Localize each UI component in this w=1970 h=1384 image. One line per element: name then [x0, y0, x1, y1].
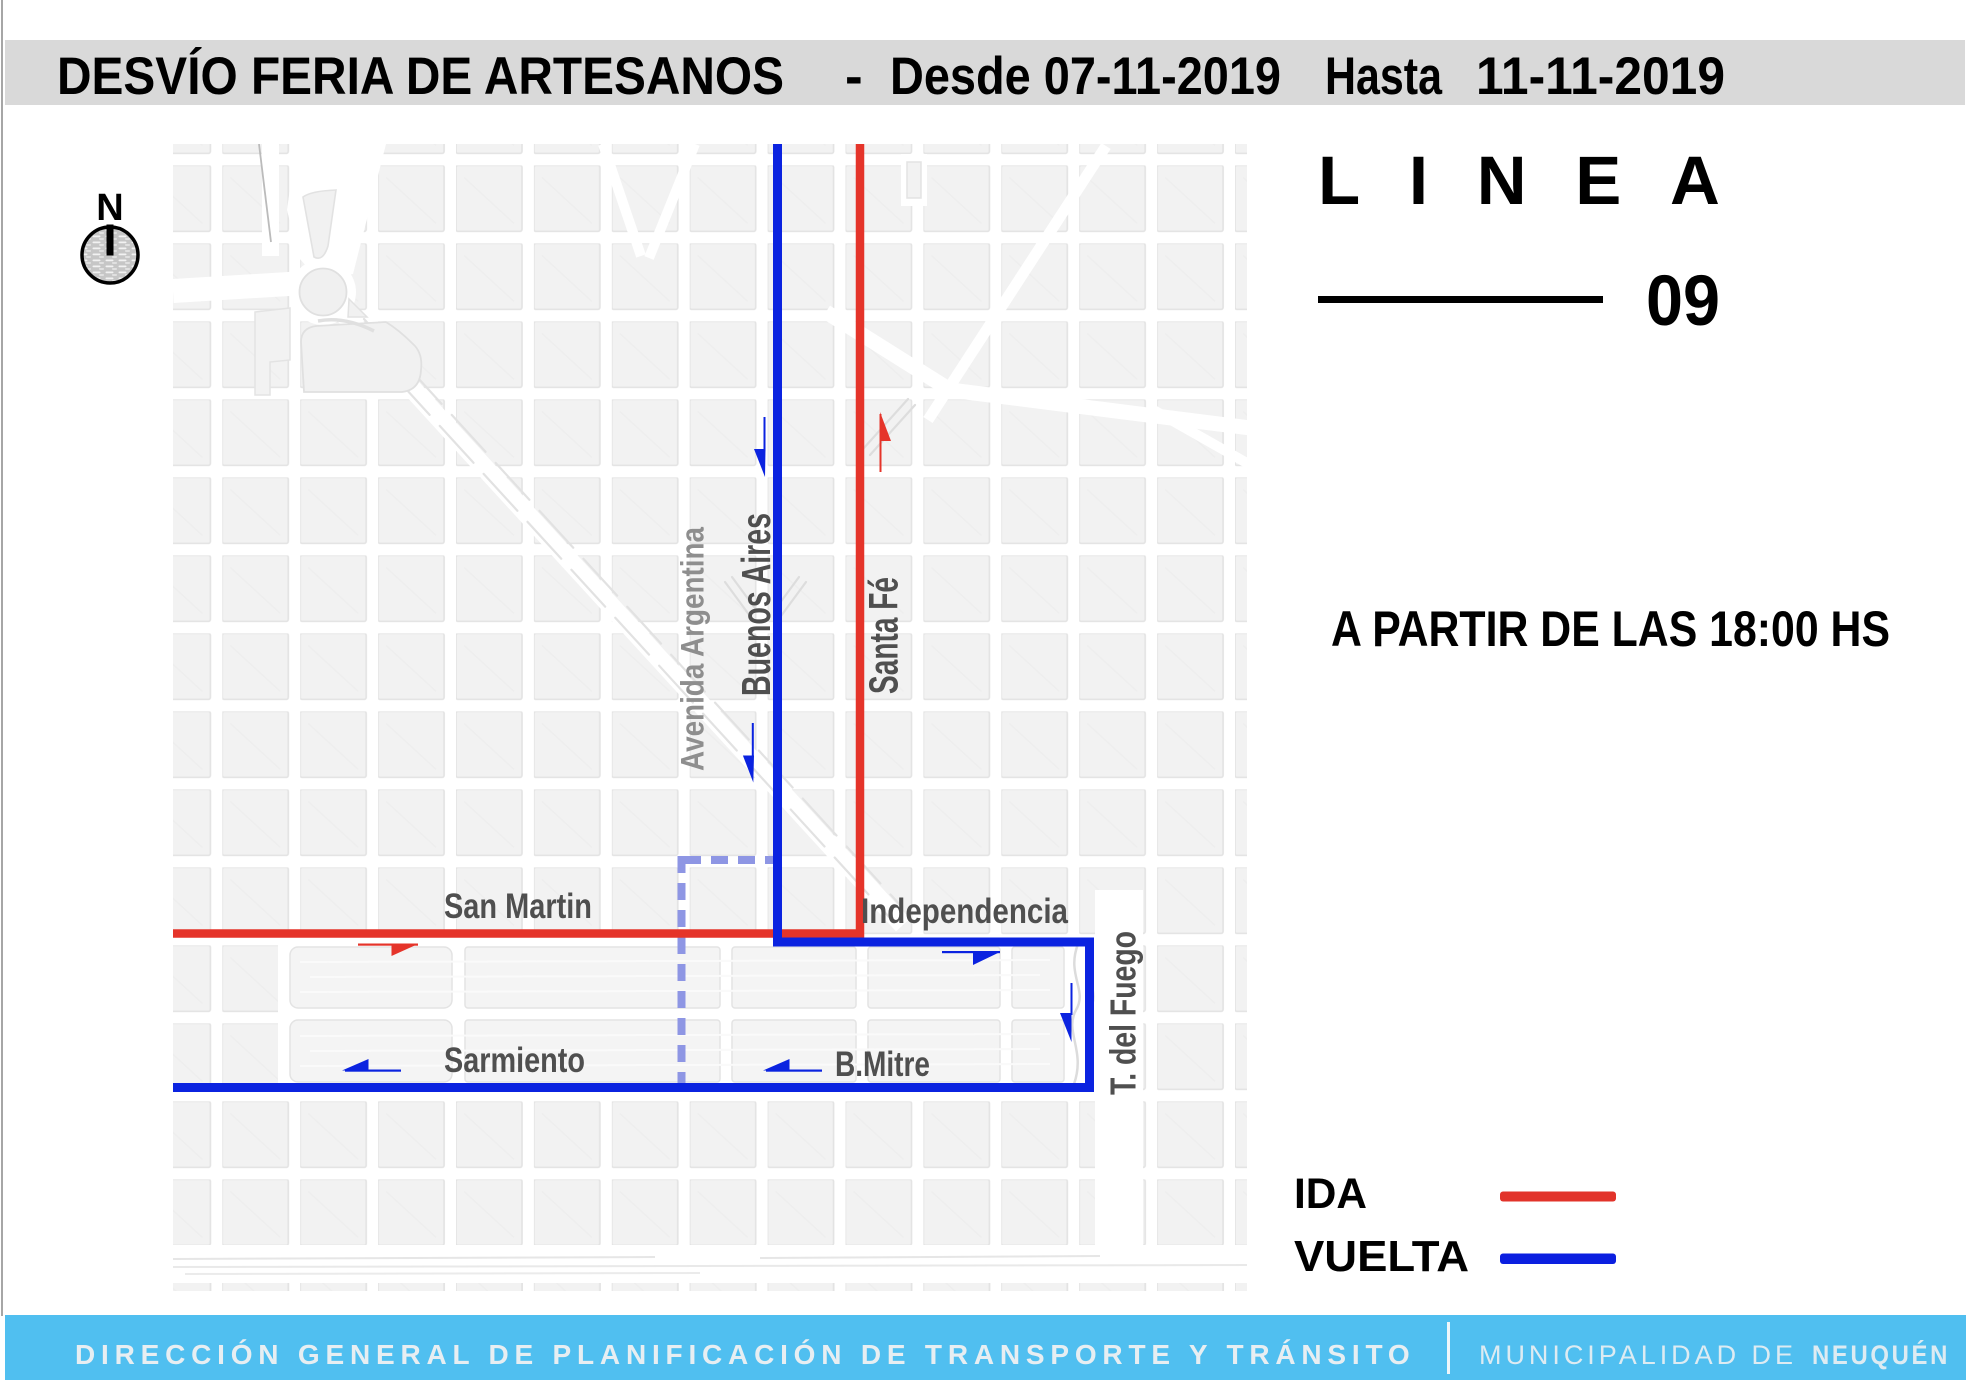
svg-text:N: N	[96, 187, 123, 229]
svg-text:Avenida Argentina: Avenida Argentina	[675, 527, 711, 771]
svg-text:09: 09	[1646, 262, 1720, 341]
svg-text:-: -	[845, 47, 863, 106]
svg-text:Santa Fé: Santa Fé	[861, 577, 907, 694]
svg-text:A PARTIR DE LAS 18:00 HS: A PARTIR DE LAS 18:00 HS	[1331, 601, 1890, 657]
svg-text:Desde 07-11-2019: Desde 07-11-2019	[890, 47, 1281, 106]
svg-text:T. del Fuego: T. del Fuego	[1103, 931, 1144, 1095]
svg-text:San Martin: San Martin	[444, 887, 592, 926]
svg-text:VUELTA: VUELTA	[1294, 1232, 1469, 1281]
svg-text:LINEA: LINEA	[1318, 142, 1769, 219]
svg-text:NEUQUÉN: NEUQUÉN	[1812, 1339, 1950, 1370]
svg-text:DIRECCIÓN GENERAL DE PLANIFICA: DIRECCIÓN GENERAL DE PLANIFICACIÓN DE TR…	[75, 1339, 1415, 1370]
svg-text:Buenos Aires: Buenos Aires	[733, 513, 779, 696]
svg-text:DESVÍO FERIA DE ARTESANOS: DESVÍO FERIA DE ARTESANOS	[57, 46, 784, 106]
svg-text:Sarmiento: Sarmiento	[444, 1041, 585, 1080]
svg-text:MUNICIPALIDAD DE: MUNICIPALIDAD DE	[1479, 1340, 1796, 1370]
svg-text:11-11-2019: 11-11-2019	[1476, 47, 1725, 106]
svg-text:IDA: IDA	[1294, 1170, 1367, 1218]
svg-text:Hasta: Hasta	[1325, 47, 1442, 106]
svg-text:Independencia: Independencia	[861, 892, 1068, 931]
svg-text:B.Mitre: B.Mitre	[835, 1045, 930, 1084]
